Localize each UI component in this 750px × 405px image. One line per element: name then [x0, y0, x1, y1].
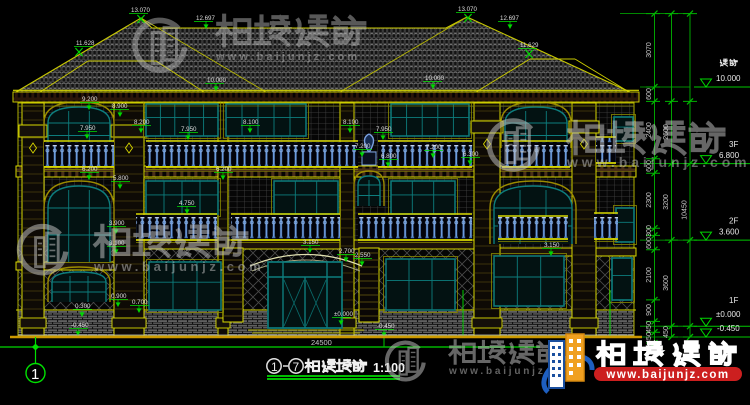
svg-text:8.100: 8.100 [343, 119, 359, 126]
svg-text:0.700: 0.700 [132, 299, 148, 306]
svg-text:11.629: 11.629 [520, 42, 539, 49]
svg-text:6.200: 6.200 [82, 166, 98, 173]
svg-text:8.900: 8.900 [112, 103, 128, 110]
svg-text:www.baijunjz.com: www.baijunjz.com [605, 369, 729, 381]
svg-text:www.baijunjz.com: www.baijunjz.com [566, 154, 750, 170]
svg-text:2.550: 2.550 [355, 252, 371, 259]
svg-text:3070: 3070 [646, 42, 653, 58]
svg-text:-0.450: -0.450 [717, 324, 740, 333]
svg-text:7.950: 7.950 [80, 125, 96, 132]
svg-text:300: 300 [646, 225, 653, 237]
svg-text:2300: 2300 [646, 192, 653, 208]
svg-text:12.697: 12.697 [500, 15, 519, 22]
svg-text:900: 900 [646, 304, 653, 316]
svg-text:10.000: 10.000 [207, 77, 226, 84]
svg-text:1: 1 [31, 366, 39, 383]
svg-text:3.150: 3.150 [544, 242, 560, 249]
svg-text:2F: 2F [729, 217, 738, 226]
svg-text:7.950: 7.950 [181, 126, 197, 133]
svg-text:600: 600 [646, 237, 653, 249]
svg-text:7: 7 [293, 360, 300, 374]
svg-text:600: 600 [646, 88, 653, 100]
svg-text:11.628: 11.628 [76, 40, 95, 47]
svg-text:3200: 3200 [663, 194, 670, 210]
svg-text:6.800: 6.800 [381, 153, 397, 160]
svg-text:24500: 24500 [311, 338, 332, 347]
svg-text:3F: 3F [729, 140, 738, 149]
svg-text:9.200: 9.200 [82, 96, 98, 103]
svg-text:13.070: 13.070 [458, 6, 477, 13]
svg-text:1F: 1F [729, 296, 738, 305]
svg-text:10.000: 10.000 [425, 75, 444, 82]
svg-text:3.900: 3.900 [109, 220, 125, 227]
svg-text:7.200: 7.200 [355, 143, 371, 150]
svg-text:0.300: 0.300 [75, 303, 91, 310]
svg-text:www.baijunjz.com: www.baijunjz.com [215, 51, 360, 63]
svg-text:2400: 2400 [646, 122, 653, 138]
svg-text:8.200: 8.200 [134, 119, 150, 126]
svg-text:3.600: 3.600 [719, 228, 740, 237]
svg-text:8.100: 8.100 [243, 119, 259, 126]
svg-text:1: 1 [271, 360, 278, 374]
svg-text:-0.450: -0.450 [71, 322, 89, 329]
svg-text:450: 450 [646, 321, 653, 333]
svg-text:0.900: 0.900 [111, 293, 127, 300]
svg-text:450: 450 [663, 326, 670, 338]
svg-text:13.070: 13.070 [131, 7, 150, 14]
svg-text:10450: 10450 [682, 200, 689, 220]
svg-text:-0.450: -0.450 [377, 323, 395, 330]
svg-text:3.150: 3.150 [303, 239, 319, 246]
svg-text:7.200: 7.200 [426, 144, 442, 151]
svg-text:7.950: 7.950 [376, 126, 392, 133]
svg-text:2100: 2100 [646, 267, 653, 283]
svg-text:±0.000: ±0.000 [334, 311, 353, 318]
svg-text:3600: 3600 [663, 275, 670, 291]
svg-text:±0.000: ±0.000 [716, 310, 741, 319]
svg-text:4.750: 4.750 [179, 200, 195, 207]
svg-text:12.697: 12.697 [196, 15, 215, 22]
svg-text:6.200: 6.200 [216, 166, 232, 173]
svg-text:6.300: 6.300 [463, 151, 479, 158]
svg-text:5.800: 5.800 [113, 175, 129, 182]
svg-text:www.baijunjz.com: www.baijunjz.com [93, 259, 264, 274]
svg-text:2.700: 2.700 [339, 248, 355, 255]
svg-text:10.000: 10.000 [716, 74, 741, 83]
